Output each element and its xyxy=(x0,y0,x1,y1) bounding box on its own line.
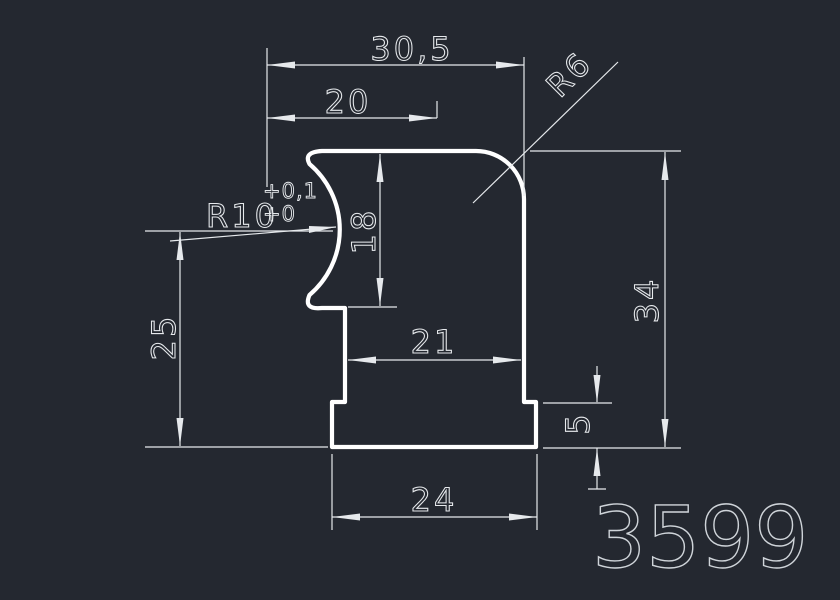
arrow-groove-height-top xyxy=(377,154,384,182)
dim-label-total-height: 34 xyxy=(628,277,666,324)
arrow-left-height-top xyxy=(177,232,184,260)
cad-canvas: 30,5 20 R6 R10 +0,1 +0 18 25 21 34 5 24 … xyxy=(0,0,840,600)
dim-label-groove-height: 18 xyxy=(345,208,383,255)
arrow-base-height-down xyxy=(594,375,601,403)
arrow-total-height-bottom xyxy=(662,419,669,447)
arrow-total-height-top xyxy=(662,152,669,180)
arrow-base-height-up xyxy=(594,448,601,476)
arrow-upper-width-left xyxy=(267,115,295,122)
dim-label-upper-width: 20 xyxy=(325,83,372,121)
arrow-base-width-left xyxy=(332,514,360,521)
arrow-top-width-left xyxy=(267,62,295,69)
arrow-body-width-left xyxy=(348,357,376,364)
arrow-groove-height-bottom xyxy=(377,278,384,306)
dim-label-base-height: 5 xyxy=(559,411,597,434)
dim-label-base-width: 24 xyxy=(411,481,458,519)
dim-label-top-width: 30,5 xyxy=(370,30,453,68)
profile-outline xyxy=(308,151,536,447)
dim-label-groove-tol-upper: +0,1 xyxy=(263,179,318,203)
technical-drawing: 30,5 20 R6 R10 +0,1 +0 18 25 21 34 5 24 … xyxy=(0,0,840,600)
part-number: 3599 xyxy=(592,489,808,588)
dim-label-left-height: 25 xyxy=(145,314,183,361)
arrowheads xyxy=(177,62,669,521)
arrow-upper-width-right xyxy=(409,115,437,122)
dim-label-groove-tol-lower: +0 xyxy=(263,202,296,226)
arrow-groove-radius xyxy=(309,226,336,233)
arrow-body-width-right xyxy=(493,357,521,364)
arrow-left-height-bottom xyxy=(177,418,184,446)
arrow-base-width-right xyxy=(509,514,537,521)
arrow-top-width-right xyxy=(496,62,524,69)
dim-label-body-width: 21 xyxy=(411,323,458,361)
dim-label-corner-radius: R6 xyxy=(539,44,600,105)
